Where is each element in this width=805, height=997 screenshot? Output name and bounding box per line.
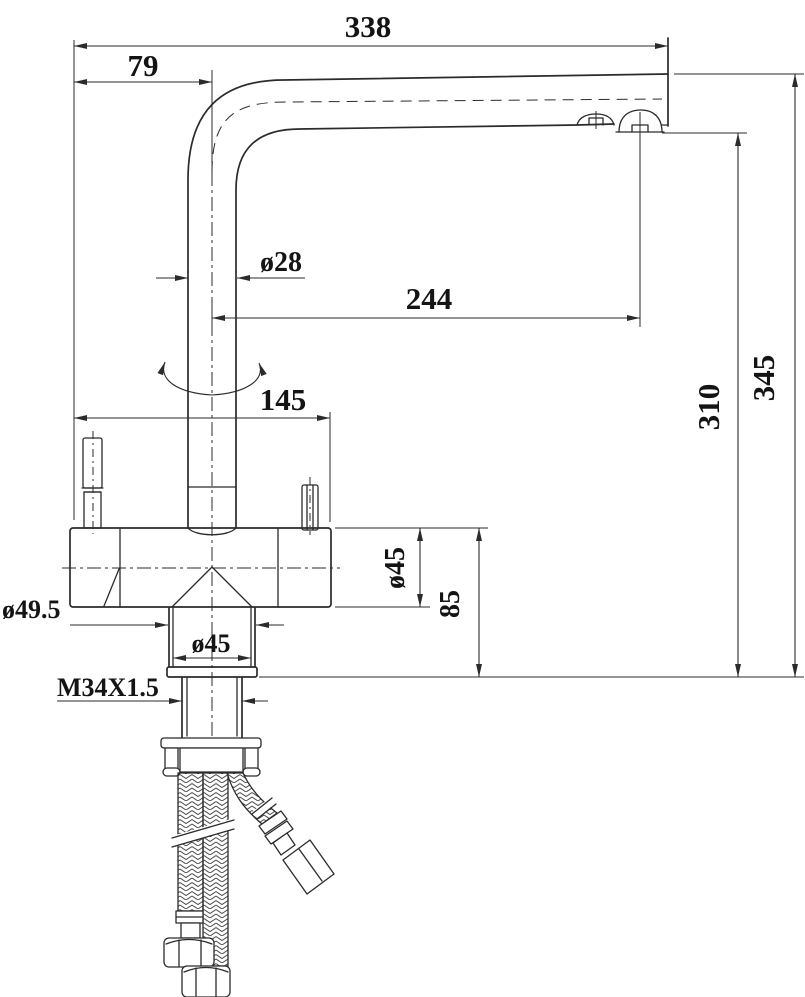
- faucet-technical-drawing-page: 338 79 ø28 244 145 ø49.5 ø45 M34X1.5: [0, 0, 805, 997]
- body-diagonal-line: [104, 569, 119, 606]
- spout-centerline: [212, 99, 662, 172]
- supply-hoses: [164, 773, 334, 997]
- dim-310-label: 310: [691, 384, 726, 431]
- dimension-345: 345: [674, 74, 804, 677]
- faucet-technical-drawing: 338 79 ø28 244 145 ø49.5 ø45 M34X1.5: [0, 0, 805, 997]
- dimension-338: 338: [74, 9, 668, 520]
- spout: [188, 38, 668, 272]
- faucet-body: [62, 528, 340, 607]
- body-cone-right: [212, 567, 252, 607]
- right-handle: [302, 477, 318, 535]
- mounting-block: [180, 748, 243, 772]
- mounting-stud-right: [245, 748, 258, 770]
- dim-o45-base-label: ø45: [192, 629, 231, 658]
- dim-thread-label: M34X1.5: [57, 673, 159, 702]
- riser-pipe: [188, 172, 236, 770]
- dim-338-label: 338: [345, 9, 392, 44]
- dimension-o45-base: ø45: [173, 629, 251, 658]
- dim-o45-body-label: ø45: [380, 547, 411, 589]
- aerator: [577, 110, 664, 132]
- dimension-79: 79: [74, 48, 212, 172]
- dimension-o28: ø28: [156, 247, 305, 278]
- dimension-o49-5: ø49.5: [2, 595, 284, 625]
- dim-85-label: 85: [435, 590, 466, 618]
- mounting-hardware: [161, 738, 261, 776]
- mounting-stud-right-cap: [243, 768, 260, 776]
- mounting-stud-left: [165, 748, 178, 770]
- hex-nut-left: [164, 938, 214, 967]
- dimension-244: 244: [212, 112, 640, 329]
- dimension-85: 85: [435, 528, 479, 677]
- left-handle: [82, 431, 103, 534]
- dim-145-label: 145: [260, 382, 307, 417]
- dim-345-label: 345: [746, 355, 781, 402]
- hose-left-neck: [181, 923, 200, 938]
- dimension-145: 145: [74, 382, 330, 522]
- mounting-plate: [161, 738, 261, 748]
- body-cone-left: [172, 567, 212, 607]
- dim-o49-5-label: ø49.5: [2, 595, 61, 624]
- dim-244-label: 244: [406, 281, 453, 316]
- dimension-310: 310: [662, 133, 747, 677]
- hex-nut-middle: [182, 966, 230, 997]
- dim-o28-label: ø28: [260, 247, 302, 278]
- dim-79-label: 79: [128, 48, 159, 83]
- hose-middle: [203, 773, 228, 966]
